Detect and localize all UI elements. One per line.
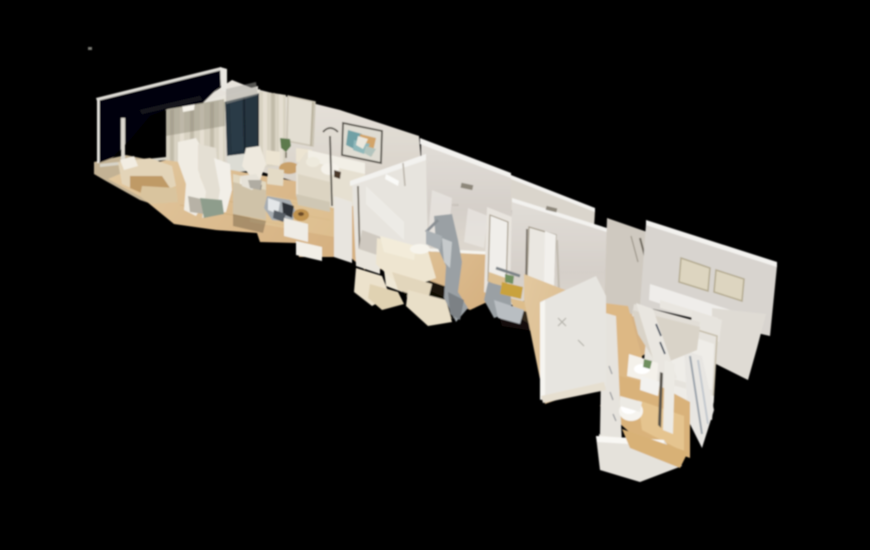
svg-text:nsa: nsa [452,202,459,207]
